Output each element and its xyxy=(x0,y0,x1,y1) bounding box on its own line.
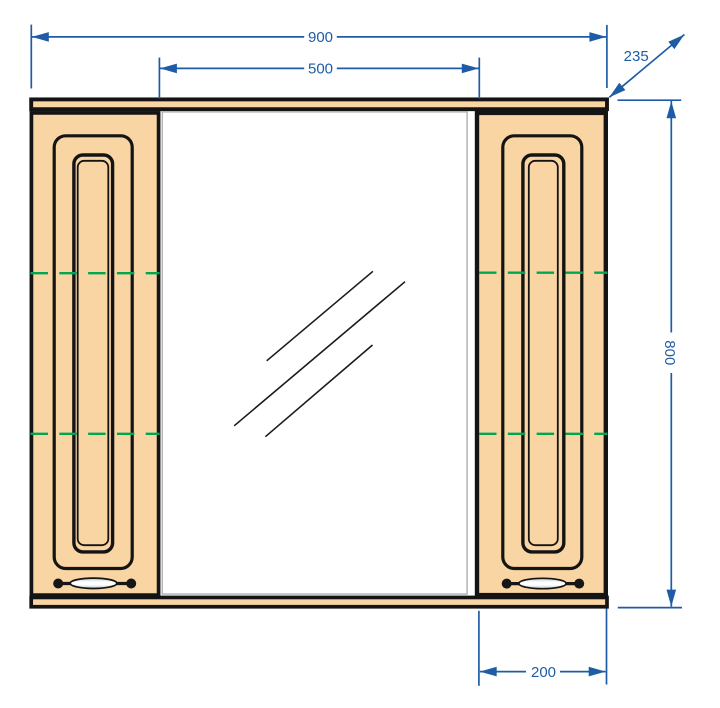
svg-text:235: 235 xyxy=(624,48,649,65)
svg-text:200: 200 xyxy=(531,664,556,681)
svg-text:500: 500 xyxy=(308,61,333,78)
svg-text:900: 900 xyxy=(308,29,333,46)
svg-text:800: 800 xyxy=(661,340,678,365)
